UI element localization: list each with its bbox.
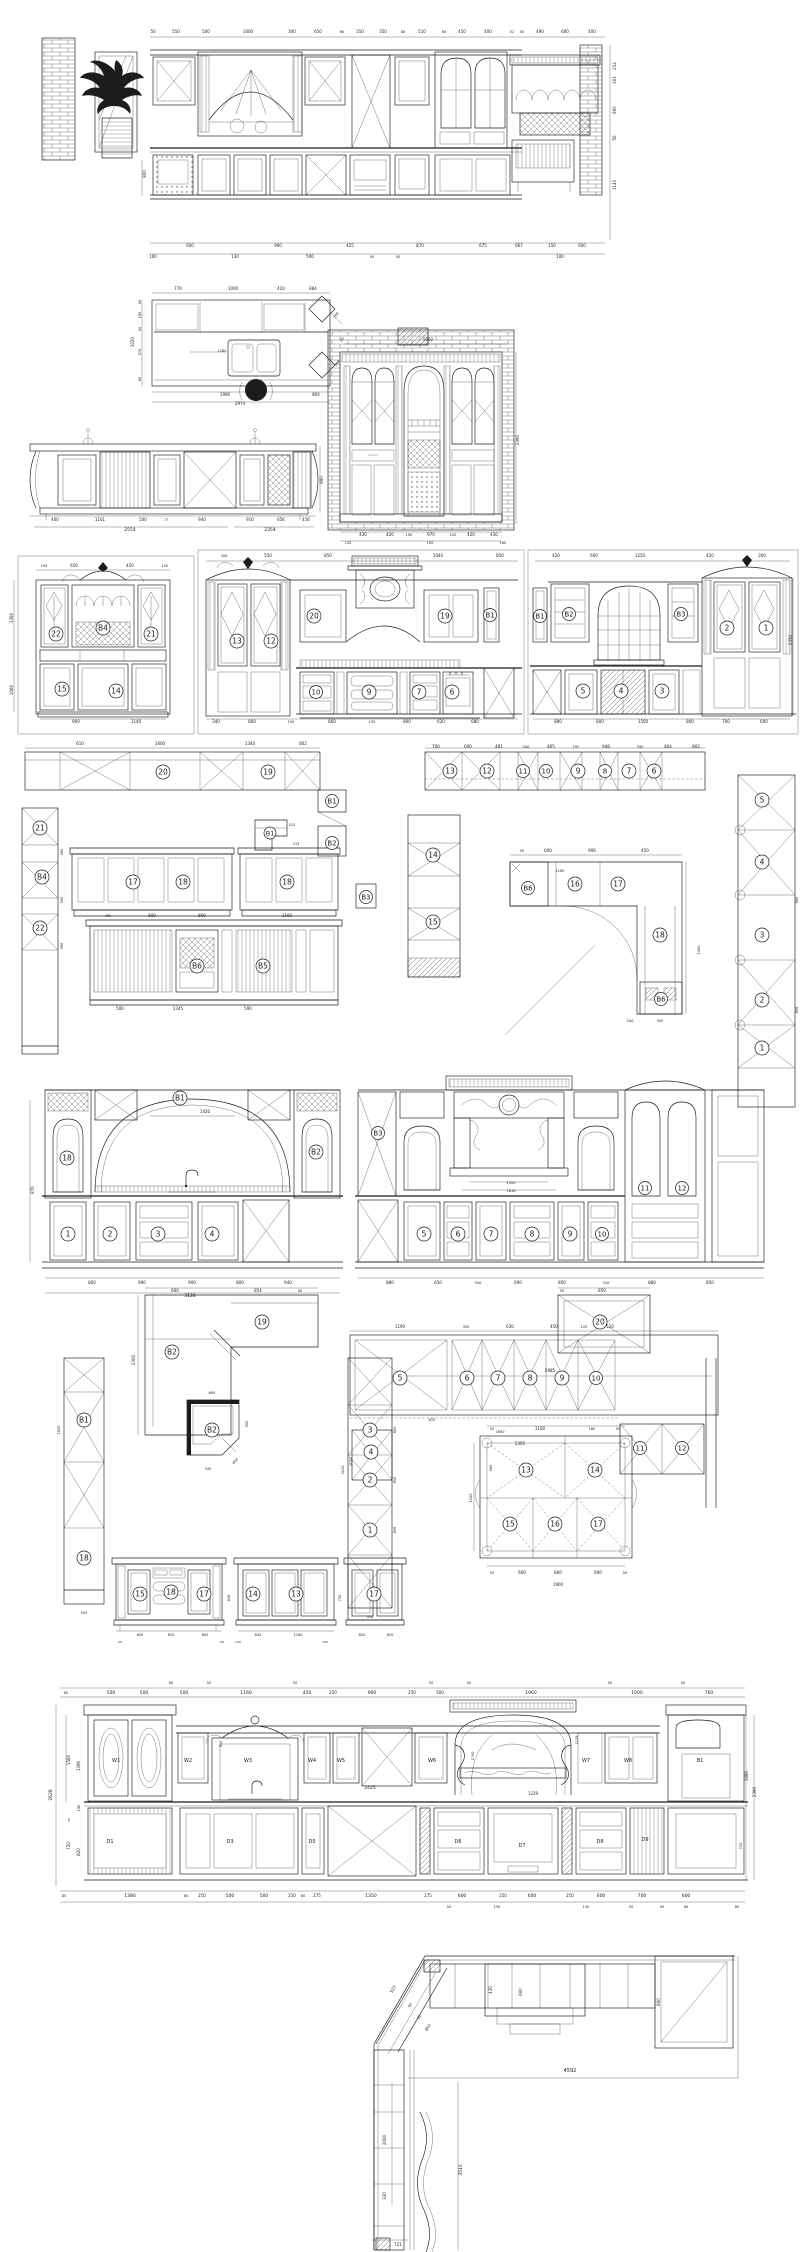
dim-label: 900 [188,1280,196,1285]
bubble-label: 15 [428,918,438,927]
dim-label: 1190 [395,1324,406,1329]
dim-label: 5305 [515,1441,526,1446]
dim-label: 520 [606,1324,614,1329]
dim-label: 250 [198,1893,206,1898]
dim-label: 50 [623,1571,627,1575]
bubble-label: 1 [760,1044,765,1053]
bubble-label: 15 [505,1520,515,1529]
dim-label: 460 [60,849,64,856]
dim-label: 600 [186,243,194,248]
dim-label: 600 [518,1988,523,1996]
dim-label: 500 [81,1611,88,1615]
dim-label: 160 [589,1427,596,1431]
dim-label: 600 [528,1893,537,1899]
bubble-label: 19 [440,612,450,621]
dim-label: 50 [220,1640,224,1644]
right-wall-elevation [528,550,798,734]
dim-label: 630 [506,1324,514,1329]
dim-label: 160 [138,312,142,319]
dim-label: 850 [393,1477,397,1484]
dim-label: 100 [162,564,169,568]
bubble-label: 20 [158,768,168,777]
bubble-label: 9 [560,1374,565,1383]
bubble-label: 12 [678,1184,687,1192]
center-wall-elevation [198,550,524,734]
bubble-label: 1 [368,1526,373,1535]
dim-label: W8 [624,1758,632,1764]
dim-label: 60 [138,300,142,304]
plant [80,60,144,114]
bubble-label: 15 [135,1590,145,1599]
dim-label: 1000 [631,1690,643,1696]
dim-label: 80 [301,1894,305,1898]
bubble-label: 18 [79,1554,89,1563]
dim-label: 700 [722,719,730,724]
dim-label: 50 [616,1427,620,1431]
dim-label: 420 [386,532,394,537]
dim-label: 1340 [245,741,256,746]
dim-label: 860 [554,1570,562,1575]
dim-label: 850 [393,1527,397,1534]
dim-label: 150 [288,720,295,724]
dim-label: 512 [289,823,296,827]
bubble-label: B2 [311,1148,321,1157]
dim-label: 800 [686,719,694,724]
bubble-label: 14 [590,1466,600,1475]
dim-label: 1100 [535,1426,546,1431]
dim-label: 675 [479,243,487,248]
dim-label: 100 [41,564,48,568]
dim-label: 50 [660,1905,664,1909]
bubble-label: 3 [368,1426,373,1435]
dim-label: 1040 [433,553,444,558]
dim-label: 2985 [545,1368,556,1373]
dim-label: 3150 [349,1458,353,1467]
dim-label: 1060 [9,684,14,695]
dim-label: 600 [202,1633,209,1637]
dim-label: 500 [139,517,147,522]
bubble-label: 17 [613,880,623,889]
dim-label: 100 [149,254,157,259]
dim-label: 1600 [155,741,166,746]
bubble-label: 4 [210,1230,215,1239]
dim-label: 600 [578,243,586,248]
cad-sheet: 5055050010003006506035035080510604504005… [0,0,800,2252]
dim-label: 350 [356,29,364,34]
upper-cabinet-plan-left [22,748,460,1054]
bubble-label: 2 [760,996,765,1005]
dim-label: 550 [264,553,272,558]
dim-label: 450 [303,1690,312,1696]
dim-label: 25 [118,1640,122,1644]
bubble-label: 18 [178,878,188,887]
dim-label: 430 [359,532,367,537]
dim-label: 130 [369,720,376,724]
w-series-wall-elevation [56,1688,754,1902]
dim-label: 1020 [130,336,135,347]
dim-label: 884 [309,286,317,291]
dim-label: 800 [558,1280,566,1285]
dim-label: 900 [612,106,617,114]
dim-label: 345 [637,745,644,749]
bubble-label: 12 [266,637,276,646]
dim-label: 50 [608,1681,612,1685]
dim-label: 350 [379,29,387,34]
dim-label: 1240 [469,1494,473,1503]
bubble-label: 18 [62,1154,72,1163]
dim-label: 50 [681,1681,685,1685]
dim-label: 50 [138,327,142,331]
dim-label: 1320 [507,1181,516,1185]
dim-label: 250 [288,1893,296,1898]
dim-label: D9 [641,1837,648,1843]
upper-cabinet-plan-right [425,748,795,1107]
dim-label: 1229 [528,1791,539,1796]
dim-label: 80 [401,30,405,34]
dim-label: 250 [329,1690,337,1695]
bubble-label: 17 [128,878,138,887]
dim-label: 852 [168,1633,175,1637]
dim-label: 80 [62,1894,66,1898]
bubble-label: B2 [564,610,573,618]
dim-label: 500 [202,29,210,34]
bubble-label: B4 [37,873,47,882]
dim-label: 360 [60,943,64,950]
bubble-label: 22 [35,924,45,933]
dim-label: W1 [112,1758,120,1764]
dim-label: 1000 [243,29,254,34]
dim-label: 800 [148,913,156,918]
dim-label: 481 [495,744,503,749]
dim-label: 35 [416,2015,422,2021]
dim-label: 100 [427,541,434,545]
dim-label: 100 [450,533,457,537]
dim-label: 50 [370,255,374,259]
dim-label: 500 [436,1690,444,1695]
dim-label: 3510 [458,2164,464,2176]
dim-label: 1390 [76,1760,81,1771]
bubble-label: 21 [35,824,45,833]
bubble-label: B1 [79,1416,89,1425]
bubble-label: 10 [542,767,551,775]
bubble-label: 7 [496,1374,501,1383]
bubble-label: 10 [312,688,321,696]
dim-label: 50 [612,135,617,141]
dim-label: 130 [231,254,239,259]
dim-label: 400 [51,517,59,522]
dim-label: 880 [648,1280,656,1285]
dim-label: 340 [212,719,220,724]
dim-label: 2628 [48,1789,54,1801]
dim-label: 212 [612,62,617,70]
bubble-label: 8 [530,1230,535,1239]
island-elevation [30,429,320,528]
dim-label: 300 [288,29,296,34]
dim-label: 764 [333,311,341,319]
dim-label: 800 [403,719,411,724]
dim-label: 820 [76,1848,81,1856]
dim-label: 50 [150,29,156,34]
tall-wall-elevation-left [30,1090,343,1293]
bubble-label: 8 [528,1374,533,1383]
dim-label: 940 [284,1280,292,1285]
dim-label: 850 [598,1288,606,1293]
bubble-label: B3 [361,893,370,901]
dim-label: 800 [656,1998,661,2006]
bubble-label: 21 [146,630,156,639]
bubble-label: 9 [367,688,372,697]
bubble-label: 2 [108,1230,113,1239]
dim-label: 600 [171,1288,179,1293]
sink-counter-plan [142,293,342,402]
dim-label: 50 [67,1818,71,1822]
dim-label: 465 [547,744,555,749]
dim-label: 600 [597,1893,606,1899]
bubble-label: 11 [641,1184,650,1192]
dim-label: 650 [70,563,78,568]
dim-label: 2425 [364,1785,376,1791]
dim-label: 500 [306,254,314,259]
dim-label: 50 [293,1681,297,1685]
bubble-label: B5 [258,962,268,971]
dim-label: 150 [548,243,556,248]
dim-label: 80 [64,1691,68,1695]
dim-label: 192 [573,745,580,749]
dim-label: 650 [434,1280,442,1285]
dim-label: 130 [235,1640,241,1644]
dim-label: 1960 [525,1690,537,1696]
dim-label: 3120 [341,1466,345,1475]
dim-label: 850 [496,553,504,558]
dim-label: 2392 [515,434,520,445]
dim-label: 50 [629,1905,633,1909]
dim-label: 4592 [564,2068,577,2074]
bubble-label: B1 [175,1094,185,1103]
dim-label: 490 [536,29,544,34]
bubble-label: 14 [248,1590,258,1599]
bubble-label: 5 [422,1230,427,1239]
bubble-label: 14 [111,687,121,696]
bubble-label: 17 [369,1590,379,1599]
dim-label: 300 [657,1019,664,1023]
dim-label: 720 [739,1843,743,1850]
bubble-label: 8 [603,767,607,775]
dim-label: 250 [566,1893,574,1898]
dim-label: 880 [554,719,562,724]
dim-label: 300 [221,554,228,558]
dim-label: 130 [583,1905,590,1909]
dim-label: 667 [515,243,523,248]
dim-label: 456 [302,517,310,522]
dim-label: 850 [795,1007,799,1014]
bubble-label: 7 [627,767,632,776]
dim-label: 1560 [66,1754,71,1765]
dim-label: 233 [293,842,300,846]
dim-label: 60 [442,30,446,34]
dim-label: 880 [386,1280,394,1285]
dim-label: 60 [138,377,142,381]
dim-label: 50 [467,1681,471,1685]
dim-label: 160 [500,541,507,545]
bubble-label: 11 [519,767,528,775]
bubble-label: 9 [576,767,581,776]
dim-label: 700 [638,1893,647,1899]
dim-label: 760 [705,1690,714,1696]
dim-label: 330 [382,2192,387,2200]
bubble-label: 1 [764,624,769,633]
bubble-label: 11 [636,1444,645,1452]
dim-label: 2354 [264,527,276,533]
dim-label: 430 [488,1986,493,1994]
counter-plans [64,1288,718,1608]
dim-label: 510 [418,29,426,34]
dim-label: 5092 [423,337,434,342]
bubble-label: 3 [660,687,665,696]
dim-label: 450 [105,914,112,918]
dim-label: 1350 [365,1893,377,1899]
dim-label: 80 [735,1905,739,1909]
bubble-label: 3 [156,1230,161,1239]
dim-label: 500 [116,1006,124,1011]
dim-label: 1143 [612,179,617,190]
dim-label: 60 [340,30,344,34]
l-shaped-kitchen-plan [372,1956,738,2252]
dim-label: 1420 [200,1109,211,1114]
dim-label: 815 [429,1418,436,1422]
dim-label: 1360 [9,612,14,623]
dim-label: 620 [387,1633,394,1637]
dim-label: 852 [424,2022,433,2032]
dim-label: 340 [523,745,530,749]
dim-label: 802 [299,741,307,746]
dim-label: 350 [463,1325,470,1329]
dim-label: 720 [338,1595,342,1602]
bubble-label: 12 [482,767,492,776]
dim-label: 80 [684,1905,688,1909]
dim-label: 950 [393,1427,397,1434]
dim-label: 1740 [471,1752,475,1761]
bubble-label: 7 [417,688,422,697]
dim-label: 1160 [294,1633,303,1637]
dim-label: 450 [458,29,466,34]
bubble-label: 13 [291,1590,301,1599]
bubble-label: 4 [619,687,624,696]
dim-label: 50 [560,1289,564,1293]
dim-label: 600 [544,848,552,853]
bubble-label: 4 [760,858,765,867]
dim-label: 656 [277,517,285,522]
bubble-label: 6 [456,1230,461,1239]
main-wall-elevation [42,37,610,254]
dim-label: 1000 [228,286,239,291]
dim-label: 425 [346,243,354,248]
dim-label: 800 [236,1280,244,1285]
dim-label: 50 [520,849,524,853]
bubble-label: 5 [581,687,586,696]
dim-label: 590 [244,1006,252,1011]
hood-wall-elevation-right [355,1076,764,1278]
dim-label: 854 [254,1288,262,1293]
dim-label: 80 [184,1894,188,1898]
dim-label: 1650 [496,1430,505,1434]
bubble-label: 20 [309,612,319,621]
dim-label: D1 [106,1839,113,1845]
bubble-label: B6 [523,884,533,892]
bubble-label: B2 [327,839,336,847]
dim-label: D6 [454,1839,461,1845]
island-plan [474,1426,637,1566]
dim-label: 50 [520,30,524,34]
bubble-label: 18 [282,878,292,887]
dim-label: 1900 [553,1582,564,1587]
dim-label: 130 [322,1640,328,1644]
dim-label: 940 [198,517,206,522]
bubble-label: 5 [398,1374,403,1383]
dim-label: 600 [458,1893,467,1899]
bubble-label: B1 [266,829,275,837]
dim-label: 400 [484,29,492,34]
dim-label: 642 [255,1633,262,1637]
dim-label: 1129 [575,1736,579,1745]
dim-label: 1280 [218,349,227,353]
dim-label: W2 [184,1758,192,1764]
bubble-label: 7 [489,1230,494,1239]
dim-label: 50 [396,255,400,259]
dim-label: 970 [427,532,435,537]
dim-label: 721 [394,2242,402,2247]
dim-label: 900 [72,719,80,724]
bubble-label: 9 [568,1230,573,1239]
dim-label: 500 [140,1690,149,1696]
dim-label: 802 [692,744,700,749]
bubble-label: 18 [166,1588,176,1597]
dim-label: 420 [277,286,285,291]
dim-label: 190 [77,1805,81,1812]
dim-label: 250 [408,1690,416,1695]
dim-label: 450 [641,848,649,853]
bubble-label: B3 [373,1129,382,1137]
dim-label: 720 [66,1842,71,1850]
bubble-label: 6 [465,1374,470,1383]
dim-label: 50 [447,1905,451,1909]
dim-label: 50 [407,2003,413,2009]
dim-label: 77 [164,518,168,522]
dim-label: 1161 [95,517,106,522]
dim-label: 2350 [788,634,793,645]
dim-label: 600 [682,1893,691,1899]
dim-label: 500 [260,1893,269,1899]
dim-label: 301 [612,76,617,84]
bubble-label: 4 [369,1448,374,1457]
dim-label: 960 [795,897,799,904]
bubble-label: 13 [232,637,242,646]
bubble-label: B3 [676,610,685,618]
dim-label: 1250 [635,553,646,558]
dim-label: 848 [227,1595,231,1602]
bubble-label: 13 [445,767,455,776]
dim-label: 650 [314,29,322,34]
dim-label: 50 [490,1571,494,1575]
dim-label: 2300 [131,1354,136,1365]
dim-label: 804 [312,392,320,397]
dim-label: 420 [706,553,714,558]
dim-label: 910 [246,517,254,522]
bubble-label: B2 [207,1426,217,1435]
dim-label: 50 [298,1289,302,1293]
dim-label: 680 [471,719,479,724]
dim-label: 1160 [282,913,293,918]
dim-label: 570 [138,349,142,356]
